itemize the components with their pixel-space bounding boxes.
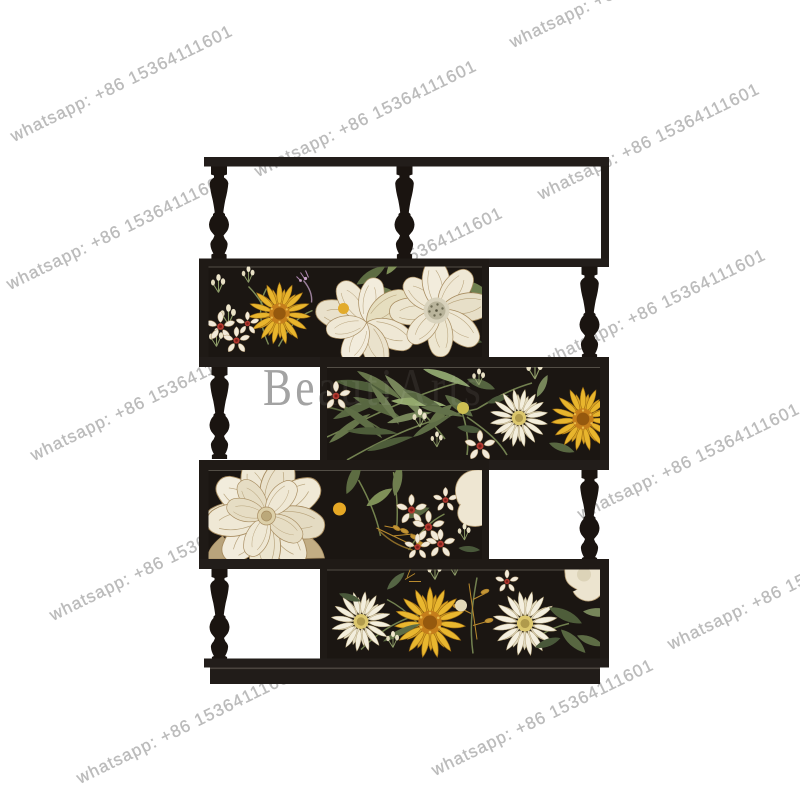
svg-text:BeautiArts: BeautiArts: [263, 359, 484, 417]
